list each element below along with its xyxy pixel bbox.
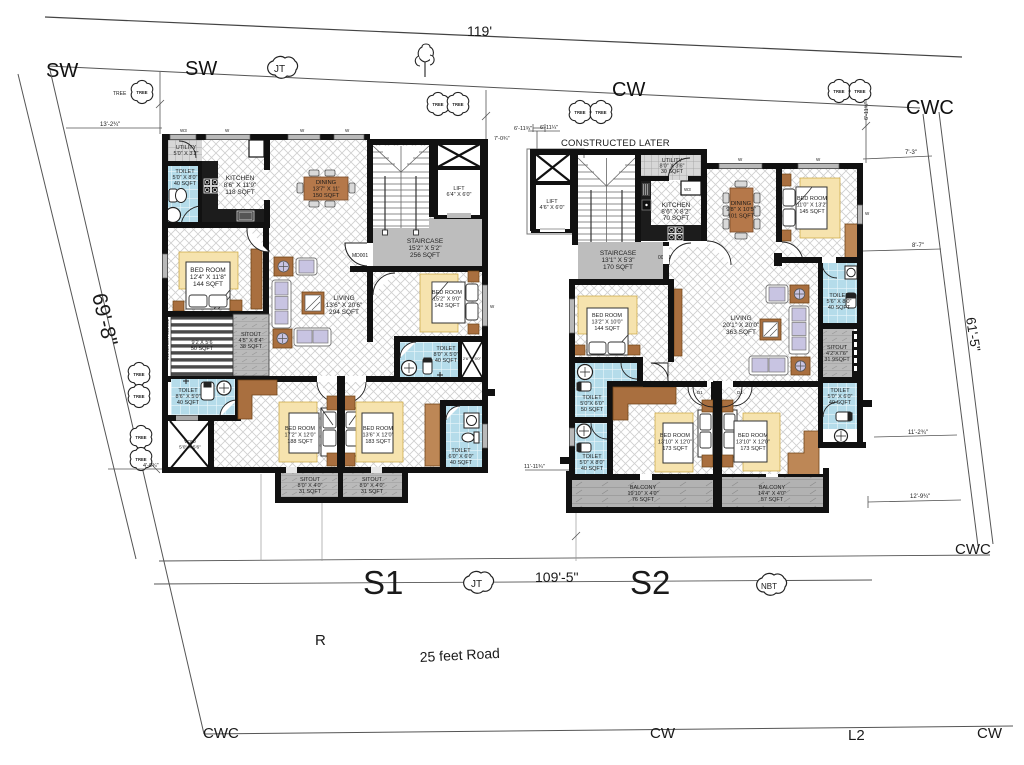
svg-text:R: R: [315, 632, 326, 649]
svg-text:TOILET5'0" X 8'0"40 SQFT: TOILET5'0" X 8'0"40 SQFT: [173, 169, 198, 187]
svg-text:8'-7": 8'-7": [912, 243, 924, 249]
svg-text:109'-5": 109'-5": [535, 569, 578, 585]
svg-text:CWC: CWC: [203, 725, 239, 742]
svg-text:CWC: CWC: [906, 97, 954, 119]
svg-text:BED ROOM15'2" X 9'0"142 SQFT: BED ROOM15'2" X 9'0"142 SQFT: [432, 290, 462, 309]
svg-text:CW: CW: [977, 725, 1003, 742]
svg-text:STAIRCASE15'2" X 5'2"256 SQFT: STAIRCASE15'2" X 5'2"256 SQFT: [407, 238, 444, 259]
svg-text:KITCHEN8'6" X 11'9"118 SQFT: KITCHEN8'6" X 11'9"118 SQFT: [224, 175, 257, 196]
svg-text:JT: JT: [274, 64, 285, 75]
svg-text:CW: CW: [612, 79, 645, 101]
svg-text:4'-0¾": 4'-0¾": [143, 463, 159, 469]
svg-text:BED ROOM17'2" X 12'0"188 SQFT: BED ROOM17'2" X 12'0"188 SQFT: [284, 426, 315, 445]
svg-text:CWC: CWC: [955, 541, 991, 558]
svg-text:CONSTRUCTED LATER: CONSTRUCTED LATER: [561, 138, 670, 149]
svg-text:CW: CW: [650, 725, 676, 742]
svg-text:SITOUT8'0" X 4'0"31 SQFT: SITOUT8'0" X 4'0"31 SQFT: [360, 477, 385, 495]
svg-text:S2: S2: [630, 564, 670, 601]
svg-text:BED ROOM13'2" X 10'0"144 SQFT: BED ROOM13'2" X 10'0"144 SQFT: [591, 313, 622, 332]
svg-text:DINING13'7" X 11'150 SQFT: DINING13'7" X 11'150 SQFT: [312, 180, 339, 199]
svg-text:11'-11¾": 11'-11¾": [524, 464, 545, 470]
svg-text:NBT: NBT: [761, 582, 777, 591]
svg-text:SW: SW: [46, 60, 78, 82]
svg-text:D1: D1: [737, 390, 743, 395]
svg-text:S1: S1: [363, 564, 403, 601]
svg-text:9'2 X 5'650 SQFT: 9'2 X 5'650 SQFT: [191, 340, 214, 352]
svg-text:W3: W3: [684, 187, 691, 192]
svg-text:TREE: TREE: [113, 91, 127, 97]
svg-text:TOILET8'0" X 5'0"40 SQFT: TOILET8'0" X 5'0"40 SQFT: [434, 346, 459, 364]
svg-text:BED ROOM13'6" X 12'0"183 SQFT: BED ROOM13'6" X 12'0"183 SQFT: [362, 426, 393, 445]
svg-text:W3: W3: [180, 128, 187, 133]
svg-text:STAIRCASE13'1" X 5'3"170 SQFT: STAIRCASE13'1" X 5'3"170 SQFT: [600, 250, 637, 271]
svg-text:L2: L2: [848, 727, 865, 744]
svg-text:KITCHEN8'6" X 8'2"70 SQFT: KITCHEN8'6" X 8'2"70 SQFT: [661, 202, 691, 222]
svg-text:13'-2¾": 13'-2¾": [100, 122, 120, 128]
svg-text:BED ROOM12'4" X 11'8"144 SQFT: BED ROOM12'4" X 11'8"144 SQFT: [190, 267, 227, 288]
svg-text:SITOUT4'5" X 8'4"38 SQFT: SITOUT4'5" X 8'4"38 SQFT: [239, 332, 264, 350]
svg-text:BED ROOM13'10" X 12'0"173 SQFT: BED ROOM13'10" X 12'0"173 SQFT: [658, 433, 692, 452]
svg-text:119': 119': [467, 23, 492, 39]
svg-text:2'6" X 5'0": 2'6" X 5'0": [463, 356, 482, 361]
svg-text:7'-0¾": 7'-0¾": [494, 136, 510, 142]
svg-text:TOILET8'6" X 5'0"40 SQFT: TOILET8'6" X 5'0"40 SQFT: [176, 388, 201, 406]
svg-text:TOILET5'0"X 6'0"50 SQFT: TOILET5'0"X 6'0"50 SQFT: [580, 395, 604, 413]
svg-text:MD001: MD001: [352, 253, 368, 259]
svg-text:12'-9¾": 12'-9¾": [910, 494, 930, 500]
svg-text:BED ROOM11'0" X 13'2"145 SQFT: BED ROOM11'0" X 13'2"145 SQFT: [797, 196, 828, 215]
svg-text:BED ROOM13'10" X 12'0"173 SQFT: BED ROOM13'10" X 12'0"173 SQFT: [736, 433, 770, 452]
svg-text:6'-11¾": 6'-11¾": [864, 102, 870, 120]
svg-text:TOILET5'6" X 8'0"40 SQFT: TOILET5'6" X 8'0"40 SQFT: [827, 293, 852, 311]
svg-text:TOILET6'0" X 6'0"40 SQFT: TOILET6'0" X 6'0"40 SQFT: [449, 448, 474, 466]
svg-text:BALCONY19'10" X 4'0"76 SQFT: BALCONY19'10" X 4'0"76 SQFT: [627, 485, 658, 503]
svg-text:JT: JT: [471, 579, 482, 590]
svg-text:UTILITY8'0" X 3'6"30 SQFT: UTILITY8'0" X 3'6"30 SQFT: [660, 158, 685, 175]
svg-text:6'-11¼": 6'-11¼": [540, 125, 558, 131]
svg-text:BALCONY14'4" X 4'0"57 SQFT: BALCONY14'4" X 4'0"57 SQFT: [758, 485, 786, 503]
svg-text:D1: D1: [697, 390, 703, 395]
svg-text:TOILET5'0" X 8'0"40 SQFT: TOILET5'0" X 8'0"40 SQFT: [580, 454, 605, 472]
svg-text:SITOUT4'2"X7'6"31.9SQFT: SITOUT4'2"X7'6"31.9SQFT: [824, 345, 850, 363]
svg-text:11'-2¾": 11'-2¾": [908, 430, 928, 436]
svg-text:SW: SW: [185, 58, 217, 80]
svg-text:SITOUT8'0" X 4'0"31 SQFT: SITOUT8'0" X 4'0"31 SQFT: [298, 477, 323, 495]
svg-text:7'-3": 7'-3": [905, 150, 917, 156]
